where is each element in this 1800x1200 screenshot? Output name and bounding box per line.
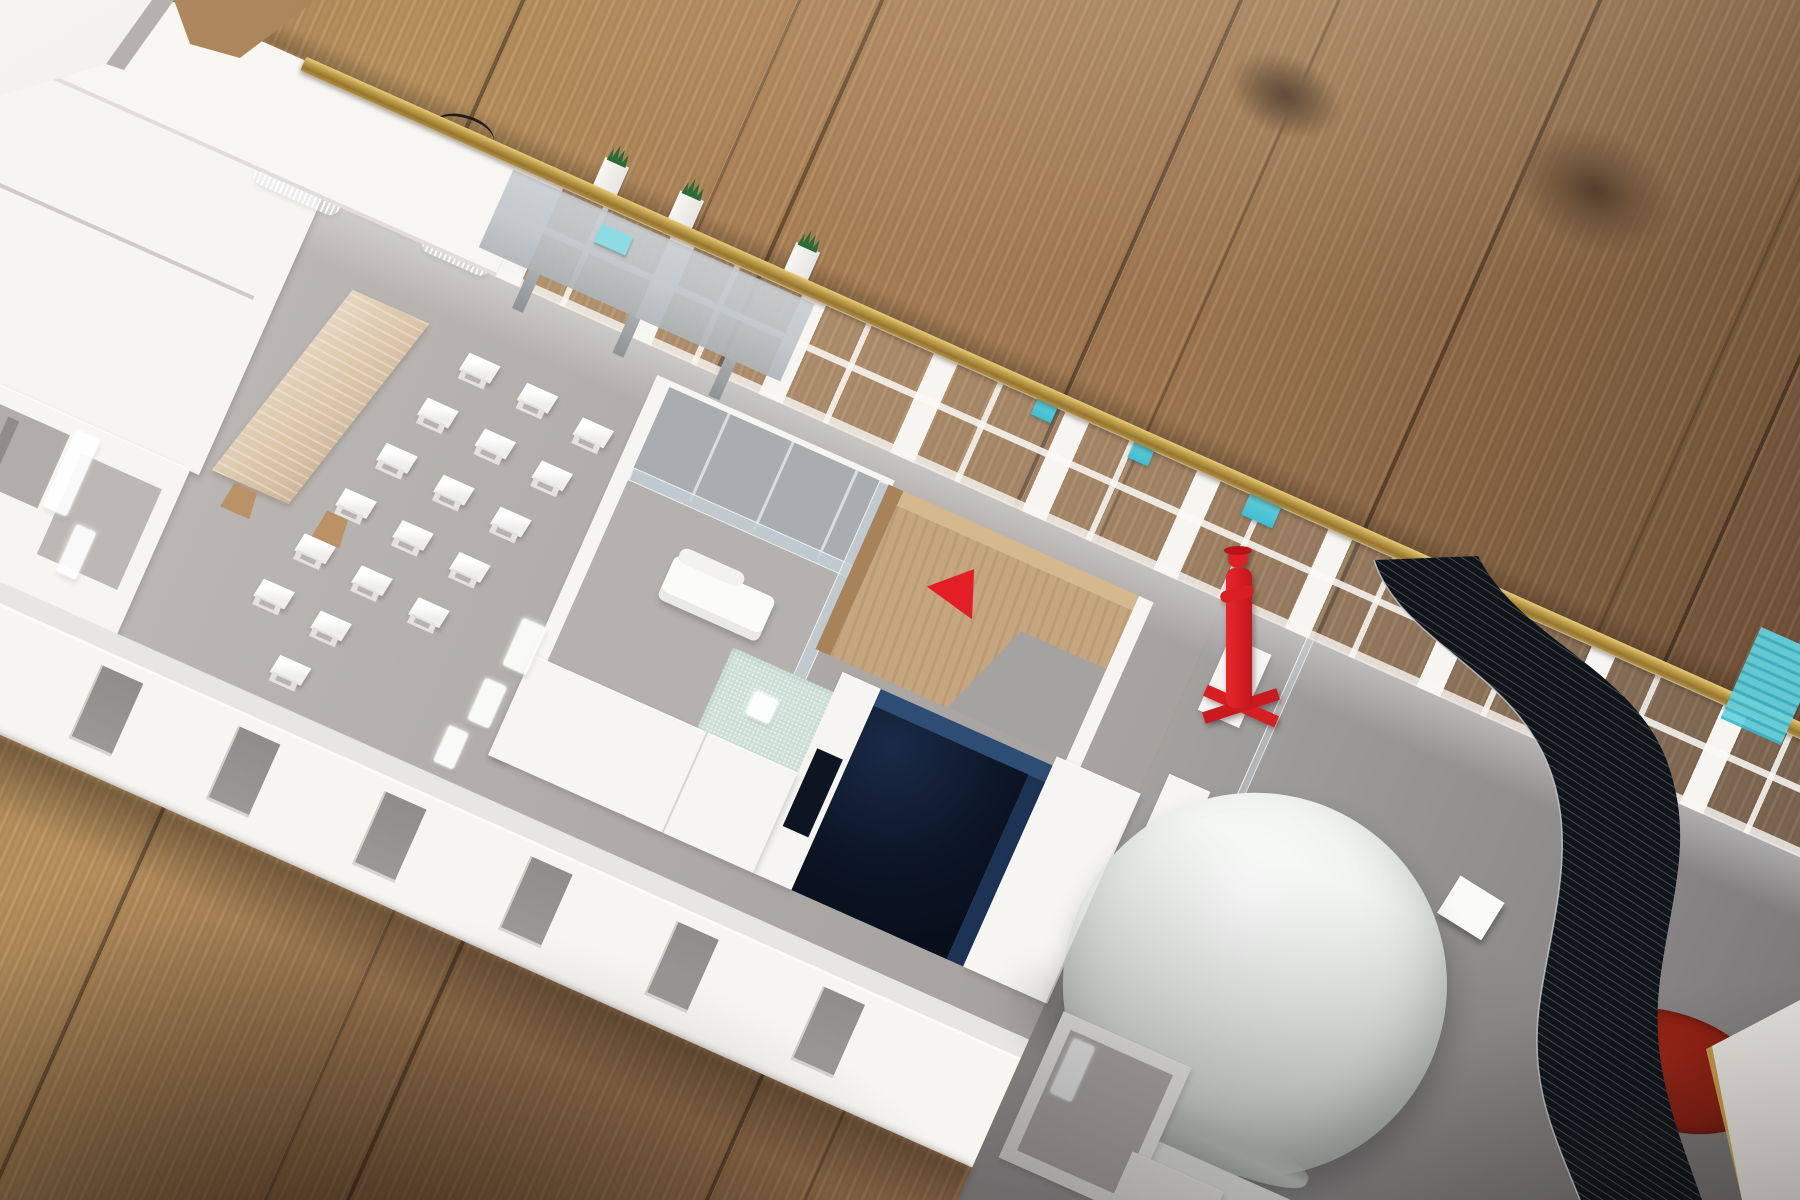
figurine-hard-hat [1224, 546, 1252, 555]
mesh-wall-ribbon [1374, 556, 1702, 1200]
red-figurine [1190, 540, 1300, 750]
mesh-wall [0, 0, 1800, 1200]
photo-stage [0, 0, 1800, 1200]
